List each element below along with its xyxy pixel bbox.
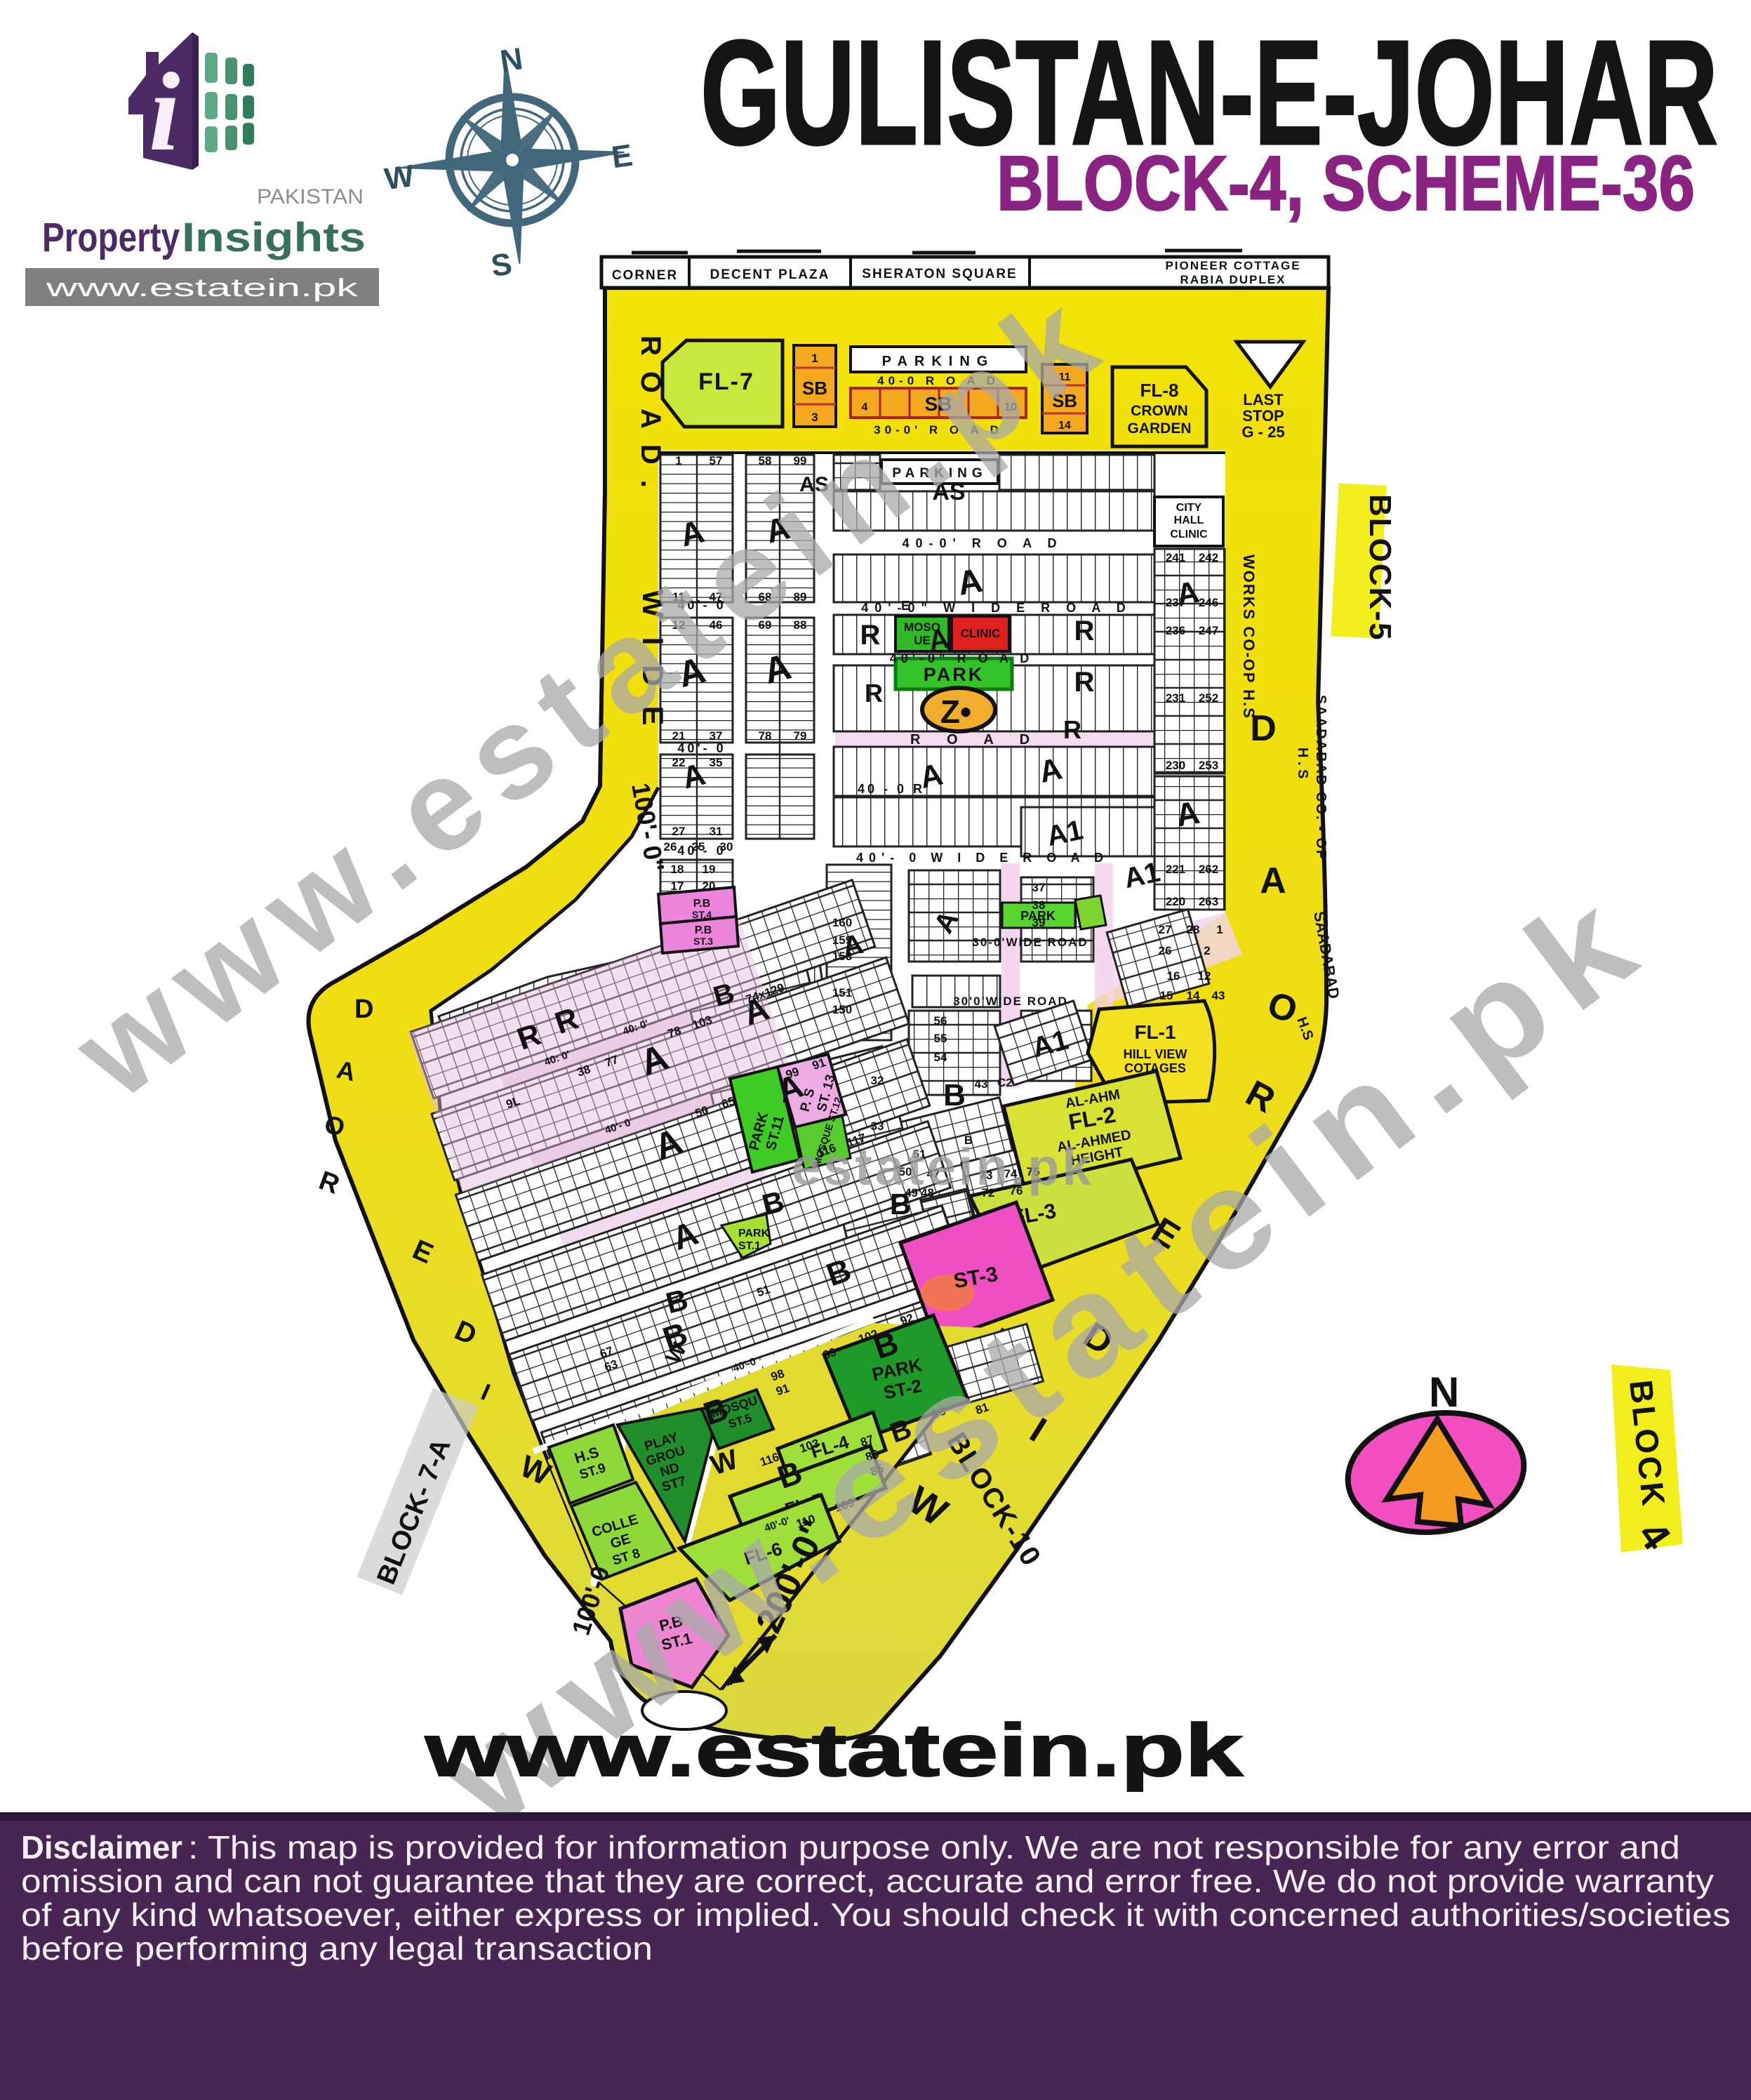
svg-text:236: 236 xyxy=(1166,624,1185,637)
svg-text:ROAD.: ROAD. xyxy=(635,335,666,503)
svg-text:W: W xyxy=(382,159,416,197)
svg-text:Insights: Insights xyxy=(182,215,366,260)
svg-text:40 - 0 R: 40 - 0 R xyxy=(858,782,925,796)
svg-text:26: 26 xyxy=(1159,944,1172,957)
svg-text:N: N xyxy=(498,41,525,79)
svg-text:159: 159 xyxy=(832,933,852,947)
svg-text:H . S: H . S xyxy=(1295,747,1310,778)
svg-text:237: 237 xyxy=(1166,596,1185,609)
svg-text:E: E xyxy=(901,599,910,613)
svg-text:GARDEN: GARDEN xyxy=(1127,420,1191,437)
svg-text:PAKISTAN: PAKISTAN xyxy=(257,185,364,208)
svg-text:R: R xyxy=(865,679,883,707)
svg-text:37: 37 xyxy=(710,729,723,743)
svg-text:27: 27 xyxy=(672,825,686,838)
svg-text:19: 19 xyxy=(703,863,716,876)
svg-text:ST.4: ST.4 xyxy=(692,909,712,920)
svg-text:ST.1: ST.1 xyxy=(738,1240,761,1252)
svg-text:LAST: LAST xyxy=(1243,391,1284,408)
svg-text:58: 58 xyxy=(759,454,772,467)
svg-text:RABIA DUPLEX: RABIA DUPLEX xyxy=(1180,273,1286,286)
svg-text:17: 17 xyxy=(671,879,684,893)
svg-text:R O A D: R O A D xyxy=(910,732,1041,747)
svg-text:262: 262 xyxy=(1199,863,1218,876)
svg-text:CROWN: CROWN xyxy=(1131,403,1188,419)
svg-text:PARK: PARK xyxy=(924,664,985,685)
svg-text:31: 31 xyxy=(710,825,723,838)
svg-text:P.B: P.B xyxy=(695,924,712,936)
svg-text:40'- 0 W I D E R O A D: 40'- 0 W I D E R O A D xyxy=(856,851,1109,865)
svg-text:G - 25: G - 25 xyxy=(1241,423,1284,441)
svg-text:1: 1 xyxy=(1216,923,1223,936)
svg-text:220: 220 xyxy=(1166,895,1185,908)
svg-text:omission and can not guarantee: omission and can not guarantee that they… xyxy=(21,1863,1714,1899)
svg-text:28: 28 xyxy=(1187,923,1200,936)
svg-text:A: A xyxy=(1260,860,1286,901)
svg-text:R: R xyxy=(1063,715,1081,744)
svg-text:38: 38 xyxy=(1032,898,1046,912)
svg-text:263: 263 xyxy=(1199,895,1218,908)
svg-text:160: 160 xyxy=(832,916,852,929)
svg-text:40'- 0: 40'- 0 xyxy=(677,741,726,755)
svg-text:12: 12 xyxy=(1198,969,1211,983)
svg-text:20: 20 xyxy=(703,879,716,893)
svg-text:FL-7: FL-7 xyxy=(698,368,754,395)
svg-text:estatein.pk: estatein.pk xyxy=(792,1138,1094,1196)
svg-text:30-0'WIDE ROAD: 30-0'WIDE ROAD xyxy=(972,936,1088,949)
svg-text:54: 54 xyxy=(934,1051,947,1064)
svg-text:221: 221 xyxy=(1166,863,1185,876)
svg-text:18: 18 xyxy=(671,863,684,876)
svg-text:R: R xyxy=(1074,616,1095,646)
svg-text:158: 158 xyxy=(832,950,852,963)
svg-text:241: 241 xyxy=(1166,551,1185,564)
svg-text:CLINIC: CLINIC xyxy=(961,627,1001,640)
svg-text:PARK: PARK xyxy=(738,1228,770,1240)
svg-text:HALL: HALL xyxy=(1174,514,1204,526)
svg-text:150: 150 xyxy=(832,1003,852,1016)
svg-text:25: 25 xyxy=(692,840,705,853)
svg-text:Disclaimer: Disclaimer xyxy=(21,1829,182,1866)
svg-text:FL-1: FL-1 xyxy=(1134,1021,1176,1043)
svg-text:BLOCK-5: BLOCK-5 xyxy=(1363,494,1397,642)
svg-text:230: 230 xyxy=(1166,759,1185,772)
svg-text:35: 35 xyxy=(710,756,723,769)
svg-text:21: 21 xyxy=(672,729,686,743)
svg-text:N: N xyxy=(1429,1369,1459,1416)
svg-text:55: 55 xyxy=(934,1032,947,1045)
svg-text:32: 32 xyxy=(871,1074,884,1087)
svg-text:R: R xyxy=(860,620,881,651)
svg-text:39: 39 xyxy=(1032,916,1046,929)
svg-text:SB: SB xyxy=(802,378,827,399)
svg-text:CITY: CITY xyxy=(1176,502,1202,514)
svg-text:Z•: Z• xyxy=(940,693,971,730)
svg-text:57: 57 xyxy=(710,454,723,467)
svg-text:40'-0" R O A D: 40'-0" R O A D xyxy=(890,651,1034,665)
svg-text:SAADABAD CO. - OP: SAADABAD CO. - OP xyxy=(1313,695,1329,860)
svg-text:CLINIC: CLINIC xyxy=(1170,529,1208,540)
svg-text:151: 151 xyxy=(832,986,852,999)
svg-text:B: B xyxy=(943,1078,966,1112)
svg-text:Property: Property xyxy=(42,215,180,260)
svg-text:14: 14 xyxy=(1187,989,1200,1002)
svg-text:CORNER: CORNER xyxy=(612,268,678,283)
svg-text:STOP: STOP xyxy=(1242,407,1284,425)
svg-text:56: 56 xyxy=(934,1014,947,1028)
svg-text:SHERATON SQUARE: SHERATON SQUARE xyxy=(862,267,1017,281)
svg-text:246: 246 xyxy=(1199,596,1218,609)
svg-text:PIONEER COTTAGE: PIONEER COTTAGE xyxy=(1165,259,1300,272)
svg-text:: This map is provided for inf: : This map is provided for information p… xyxy=(188,1829,1680,1866)
svg-text:DECENT PLAZA: DECENT PLAZA xyxy=(710,267,830,282)
svg-text:33: 33 xyxy=(871,1119,884,1133)
svg-text:i: i xyxy=(149,49,180,174)
svg-text:www.estatein.pk: www.estatein.pk xyxy=(45,273,359,302)
svg-text:ST.3: ST.3 xyxy=(693,936,713,947)
svg-text:1: 1 xyxy=(811,352,818,365)
svg-text:40-0' R O A D: 40-0' R O A D xyxy=(903,536,1063,550)
svg-text:30'0'WIDE ROAD: 30'0'WIDE ROAD xyxy=(953,995,1068,1008)
svg-text:37: 37 xyxy=(1032,881,1046,894)
svg-text:16: 16 xyxy=(1167,969,1180,983)
svg-text:WORKS CO-OP H.S: WORKS CO-OP H.S xyxy=(1240,554,1258,719)
svg-text:of any kind whatsoever, either: of any kind whatsoever, either express o… xyxy=(21,1896,1731,1933)
svg-text:P.B: P.B xyxy=(693,898,711,910)
svg-text:27: 27 xyxy=(1159,923,1172,936)
svg-text:1: 1 xyxy=(675,454,681,467)
svg-text:before performing any legal tr: before performing any legal transaction xyxy=(21,1930,653,1967)
svg-text:242: 242 xyxy=(1199,551,1218,564)
svg-text:30: 30 xyxy=(720,840,733,853)
svg-text:252: 252 xyxy=(1199,691,1218,705)
svg-text:231: 231 xyxy=(1166,691,1185,705)
svg-text:D: D xyxy=(354,995,373,1024)
svg-text:43: 43 xyxy=(975,1077,988,1091)
svg-text:BLOCK-4, SCHEME-36: BLOCK-4, SCHEME-36 xyxy=(997,140,1695,227)
svg-text:253: 253 xyxy=(1199,759,1218,772)
svg-text:HILL VIEW: HILL VIEW xyxy=(1124,1047,1187,1061)
svg-text:FL-8: FL-8 xyxy=(1140,380,1179,401)
svg-text:3: 3 xyxy=(811,411,818,424)
svg-text:2: 2 xyxy=(1204,944,1210,957)
svg-text:79: 79 xyxy=(794,729,807,743)
svg-text:78: 78 xyxy=(759,729,772,743)
svg-text:R: R xyxy=(1074,667,1095,698)
svg-text:43: 43 xyxy=(1212,989,1225,1002)
svg-text:www.estatein.pk: www.estatein.pk xyxy=(425,1709,1244,1792)
svg-text:15: 15 xyxy=(1160,989,1173,1002)
svg-text:C2: C2 xyxy=(997,1076,1013,1089)
svg-text:247: 247 xyxy=(1199,624,1218,637)
svg-text:22: 22 xyxy=(672,756,686,769)
